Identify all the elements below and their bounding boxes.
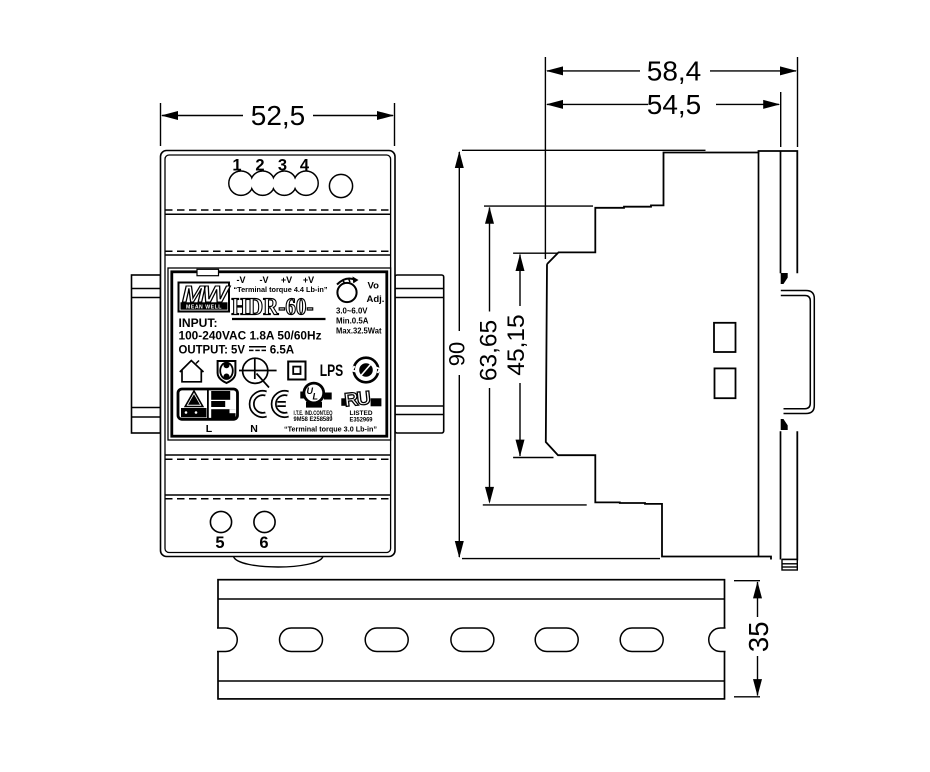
svg-text:MEAN WELL: MEAN WELL bbox=[186, 305, 222, 311]
svg-text:6: 6 bbox=[259, 534, 268, 552]
svg-text:E352969: E352969 bbox=[350, 416, 373, 423]
svg-text:5: 5 bbox=[215, 534, 224, 552]
svg-text:Vo: Vo bbox=[368, 281, 380, 292]
svg-text:4: 4 bbox=[300, 157, 310, 175]
svg-text:1: 1 bbox=[232, 157, 241, 175]
svg-text:100-240VAC 1.8A 50/60Hz: 100-240VAC 1.8A 50/60Hz bbox=[179, 328, 322, 342]
svg-text:9M58 E258589: 9M58 E258589 bbox=[294, 416, 333, 423]
svg-text:N: N bbox=[250, 423, 258, 435]
svg-text:“Terminal torque 3.0 Lb-in”: “Terminal torque 3.0 Lb-in” bbox=[284, 425, 377, 434]
svg-text:+V: +V bbox=[303, 275, 314, 285]
svg-text:45,15: 45,15 bbox=[503, 314, 530, 375]
svg-text:L: L bbox=[206, 423, 213, 435]
svg-text:52,5: 52,5 bbox=[251, 100, 306, 131]
svg-text:63,65: 63,65 bbox=[476, 320, 503, 381]
svg-text:58,4: 58,4 bbox=[647, 56, 702, 87]
svg-text:35: 35 bbox=[743, 622, 774, 653]
svg-text:2: 2 bbox=[255, 157, 264, 175]
svg-text:Min.0.5A: Min.0.5A bbox=[336, 317, 369, 326]
svg-text:54,5: 54,5 bbox=[647, 89, 702, 120]
svg-text:3.0~6.0V: 3.0~6.0V bbox=[336, 307, 368, 316]
svg-text:6.5A: 6.5A bbox=[270, 342, 295, 356]
svg-text:OUTPUT: 5V: OUTPUT: 5V bbox=[179, 342, 246, 356]
svg-text:90: 90 bbox=[444, 342, 469, 366]
svg-text:3: 3 bbox=[278, 157, 287, 175]
svg-text:LPS: LPS bbox=[320, 361, 344, 380]
svg-text:“Terminal torque 4.4 Lb-in”: “Terminal torque 4.4 Lb-in” bbox=[234, 287, 328, 294]
svg-text:RU: RU bbox=[343, 388, 371, 412]
svg-text:L: L bbox=[313, 392, 319, 402]
svg-text:-V: -V bbox=[237, 275, 246, 285]
svg-text:-V: -V bbox=[260, 275, 269, 285]
svg-text:Adj.: Adj. bbox=[367, 294, 385, 305]
svg-text:HDR-60-: HDR-60- bbox=[232, 295, 314, 321]
svg-text:Max.32.5Wat: Max.32.5Wat bbox=[336, 327, 382, 336]
svg-text:+V: +V bbox=[281, 275, 292, 285]
